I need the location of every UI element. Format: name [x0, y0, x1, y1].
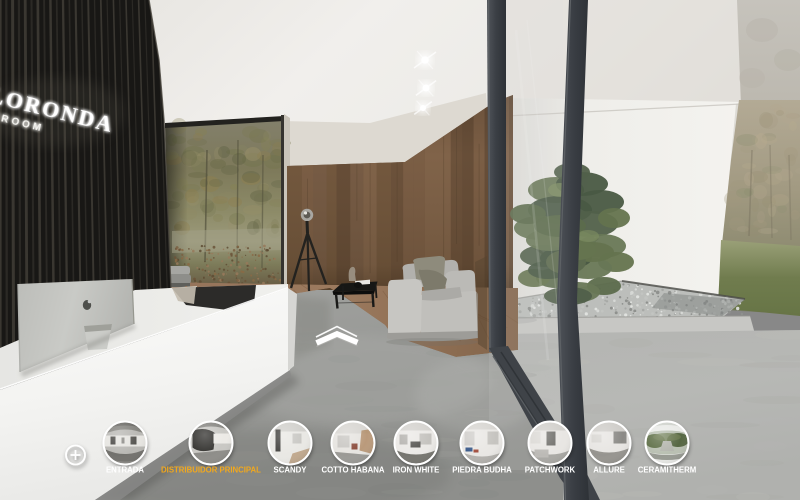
- svg-text:DISTRIBUIDOR PRINCIPAL: DISTRIBUIDOR PRINCIPAL: [161, 466, 261, 475]
- svg-text:ENTRADA: ENTRADA: [106, 466, 144, 475]
- svg-text:PIEDRA BUDHA: PIEDRA BUDHA: [452, 466, 512, 475]
- svg-text:COTTO HABANA: COTTO HABANA: [321, 466, 384, 475]
- svg-text:ALLURE: ALLURE: [593, 466, 625, 475]
- svg-text:SCANDY: SCANDY: [274, 466, 308, 475]
- svg-text:PATCHWORK: PATCHWORK: [525, 466, 576, 475]
- svg-text:CERAMITHERM: CERAMITHERM: [638, 466, 696, 475]
- svg-text:IRON WHITE: IRON WHITE: [393, 466, 440, 475]
